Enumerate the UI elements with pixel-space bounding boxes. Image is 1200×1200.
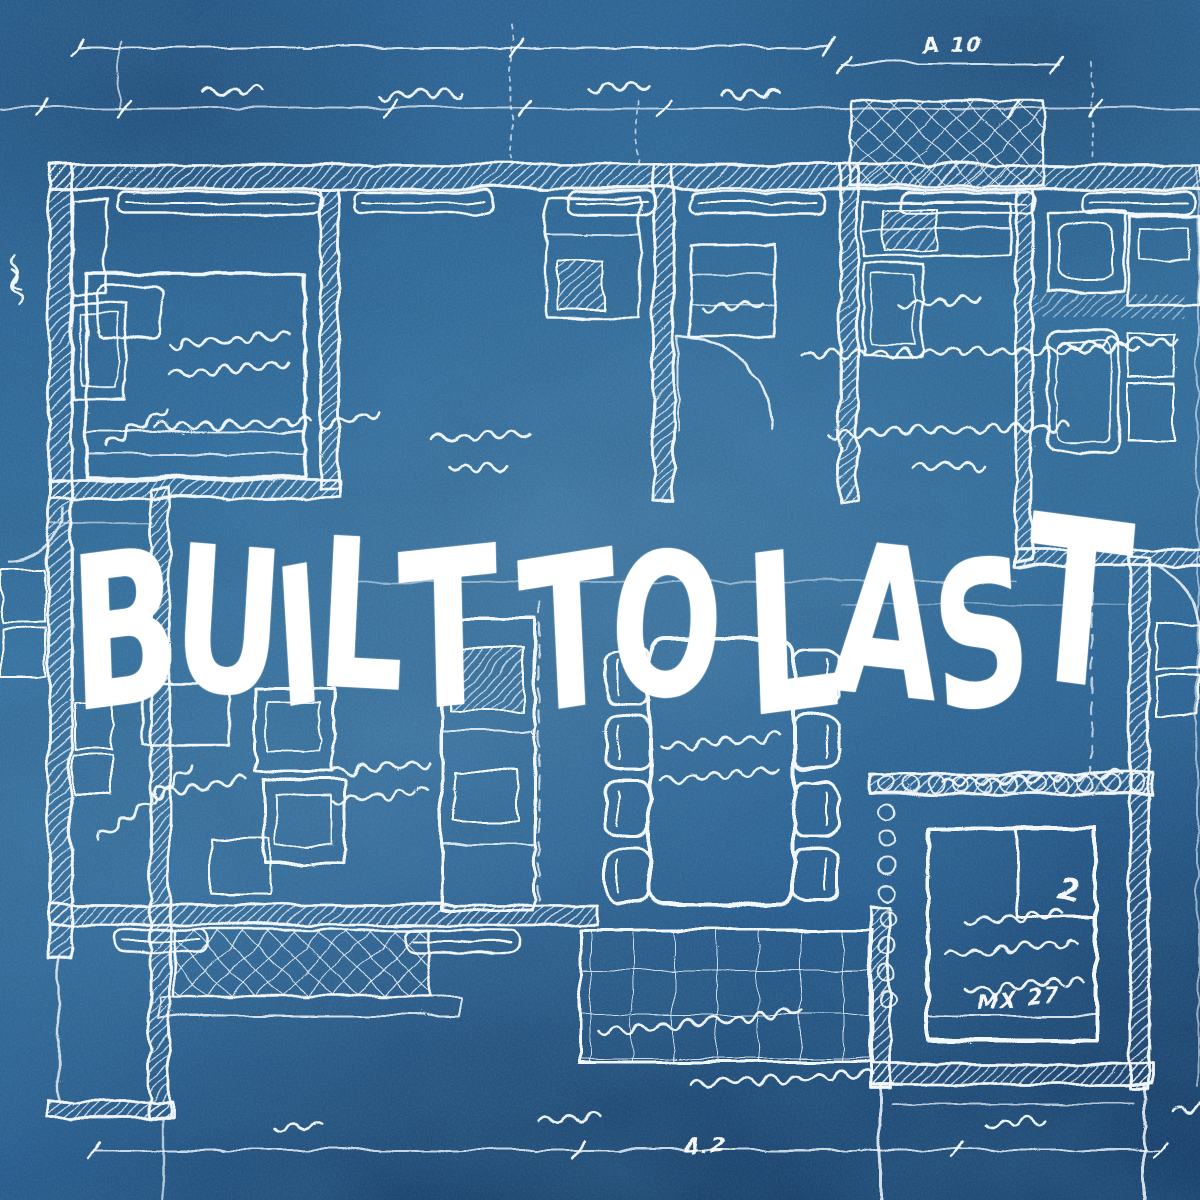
annotation-bottom-dimension: 4.2: [680, 1131, 725, 1157]
annotation-top-dimension: A 10: [917, 29, 981, 55]
blueprint-poster: A 10 MX 27 4.2 2 BUILT TO LAST: [0, 0, 1200, 1200]
blueprint-floor-plan: A 10 MX 27 4.2 2: [0, 0, 1200, 1200]
